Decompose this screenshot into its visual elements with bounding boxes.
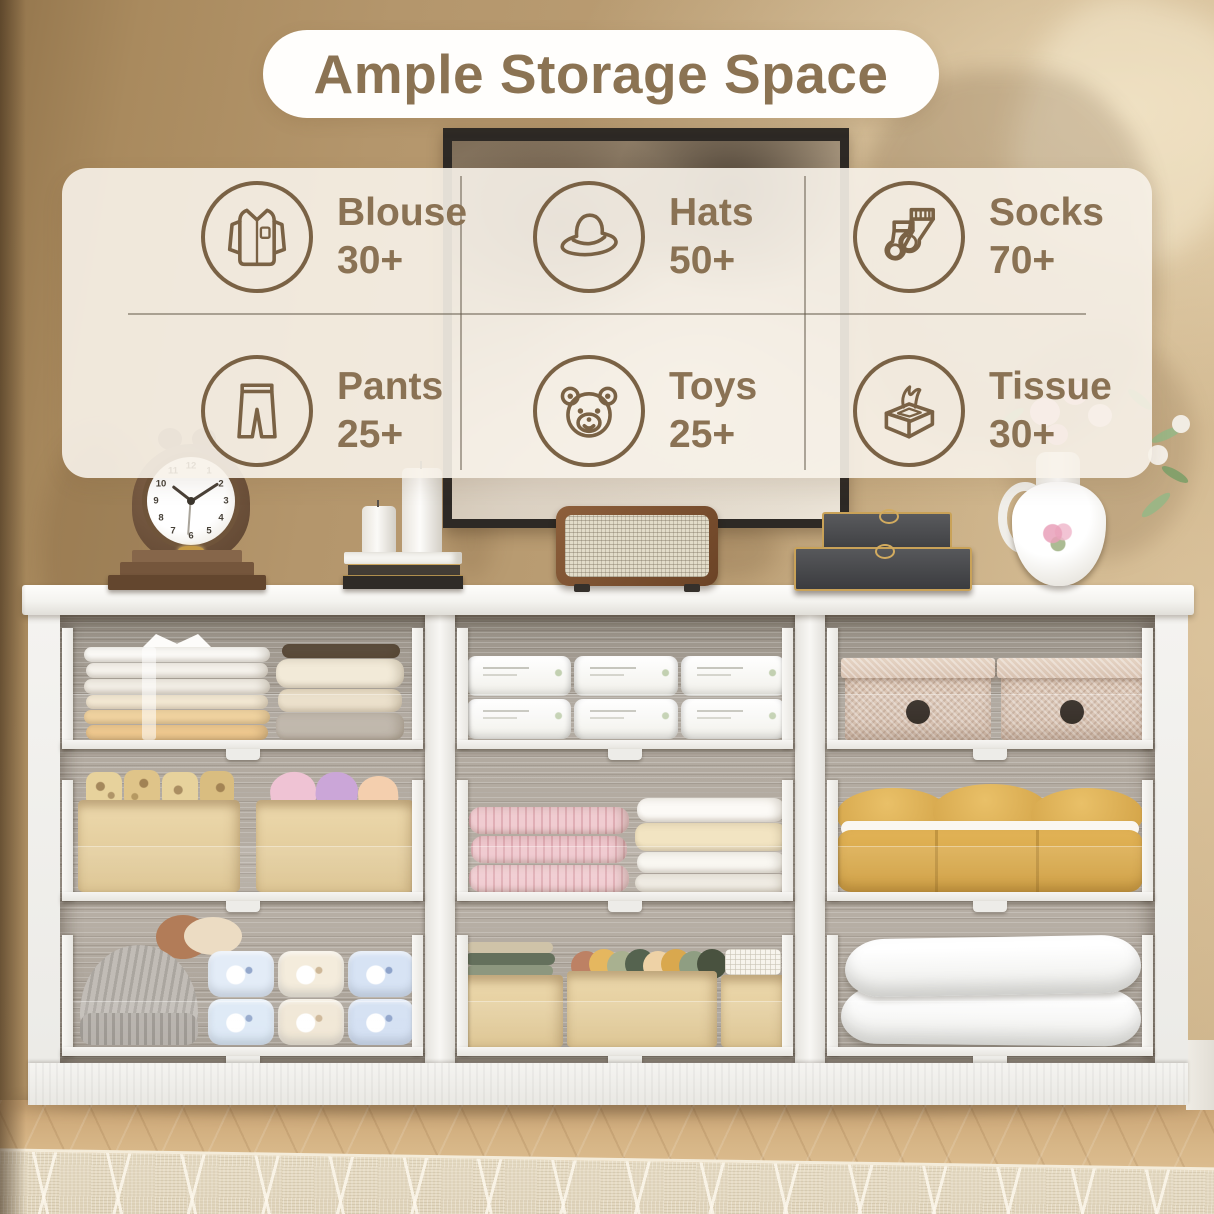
dresser-base [28, 1063, 1188, 1105]
shelf-bracket [827, 628, 838, 749]
storage-item-label: Toys [669, 363, 757, 411]
shelf-acrylic-front [73, 694, 412, 741]
dresser-divider [795, 615, 825, 1063]
storage-item-hats: Hats 50+ [533, 184, 754, 290]
pullout-shelf [827, 935, 1153, 1067]
shelf-acrylic-front [73, 1001, 412, 1048]
storage-item-label: Socks [989, 189, 1104, 237]
teddy-bear-icon [533, 355, 645, 467]
storage-dresser [28, 585, 1188, 1105]
storage-item-count: 30+ [337, 237, 467, 285]
storage-item-count: 25+ [669, 411, 757, 459]
storage-item-pants: Pants 25+ [201, 358, 443, 464]
shelf-bracket [782, 780, 793, 901]
pants-icon [201, 355, 313, 467]
clock-numeral: 4 [218, 513, 223, 524]
shelf-board [62, 892, 423, 901]
shelf-board [827, 740, 1153, 749]
storage-item-socks: Socks 70+ [853, 184, 1104, 290]
storage-item-text: Hats 50+ [669, 189, 754, 284]
shelf-bracket [412, 780, 423, 901]
clock-pin [187, 497, 195, 505]
tissue-icon [853, 355, 965, 467]
shelf-tab [608, 901, 642, 912]
shelf-bracket [1142, 780, 1153, 901]
pullout-shelf [457, 780, 793, 912]
clock-numeral: 5 [206, 526, 211, 537]
shelf-acrylic-front [73, 846, 412, 893]
pillar-candle [362, 506, 396, 554]
clock-numeral: 9 [153, 496, 158, 507]
storage-item-label: Tissue [989, 363, 1112, 411]
storage-item-tissue: Tissue 30+ [853, 358, 1112, 464]
dark-book [343, 575, 463, 589]
storage-item-count: 25+ [337, 411, 443, 459]
shelf-bracket [782, 628, 793, 749]
clock-base-step [120, 562, 254, 576]
shelf-tab [973, 749, 1007, 760]
speaker-foot [574, 584, 590, 592]
speaker-grille [565, 515, 709, 577]
shelf-board [457, 1047, 793, 1056]
shelf-bracket [62, 628, 73, 749]
shelf-bracket [1142, 628, 1153, 749]
hat-icon [533, 181, 645, 293]
shelf-board [827, 1047, 1153, 1056]
storage-item-count: 50+ [669, 237, 754, 285]
shelf-bracket [412, 935, 423, 1056]
clock-base-step [108, 575, 266, 590]
title-pill: Ample Storage Space [263, 30, 939, 118]
panel-divider-vertical [804, 176, 806, 470]
shelf-tab [226, 901, 260, 912]
shelf-board [62, 740, 423, 749]
shelf-tab [973, 901, 1007, 912]
pullout-shelf [457, 935, 793, 1067]
box-handle [879, 509, 899, 524]
shelf-acrylic-front [838, 694, 1142, 741]
shelf-bracket [62, 780, 73, 901]
shelf-board [457, 740, 793, 749]
product-scene: 12 1 2 3 4 5 6 7 8 9 10 11 [0, 0, 1214, 1214]
baseboard [1186, 1040, 1214, 1110]
shelf-acrylic-front [468, 846, 782, 893]
shelf-bracket [827, 935, 838, 1056]
clock-numeral: 7 [170, 526, 175, 537]
vase-floral-decal [1040, 520, 1076, 554]
shelf-tab [226, 749, 260, 760]
wall-corner-shadow [0, 0, 26, 1214]
shelf-bracket [62, 935, 73, 1056]
storage-item-text: Socks 70+ [989, 189, 1104, 284]
blouse-icon [201, 181, 313, 293]
wicker-speaker [556, 506, 718, 586]
storage-item-label: Pants [337, 363, 443, 411]
pullout-shelf [827, 780, 1153, 912]
clock-numeral: 10 [156, 479, 167, 490]
storage-info-panel: Blouse 30+ Hats 50+ [62, 168, 1152, 478]
keepsake-box-large [794, 547, 972, 591]
storage-item-text: Pants 25+ [337, 363, 443, 458]
storage-item-label: Blouse [337, 189, 467, 237]
clock-numeral: 8 [158, 513, 163, 524]
socks-icon [853, 181, 965, 293]
speaker-foot [684, 584, 700, 592]
pullout-shelf [827, 628, 1153, 760]
storage-item-toys: Toys 25+ [533, 358, 757, 464]
shelf-bracket [457, 780, 468, 901]
dresser-divider [425, 615, 455, 1063]
shelf-bracket [1142, 935, 1153, 1056]
storage-item-text: Blouse 30+ [337, 189, 467, 284]
pullout-shelf [62, 935, 423, 1067]
white-rose [1172, 415, 1190, 433]
storage-item-text: Toys 25+ [669, 363, 757, 458]
pullout-shelf [457, 628, 793, 760]
storage-item-count: 30+ [989, 411, 1112, 459]
pullout-shelf [62, 628, 423, 760]
shelf-acrylic-front [468, 694, 782, 741]
shelf-bracket [782, 935, 793, 1056]
white-book [344, 552, 462, 564]
shelf-tab [608, 749, 642, 760]
clock-numeral: 2 [218, 479, 223, 490]
shelf-bracket [412, 628, 423, 749]
shelf-bracket [457, 628, 468, 749]
shelf-board [457, 892, 793, 901]
clock-numeral: 3 [223, 496, 228, 507]
pullout-shelf [62, 780, 423, 912]
box-handle [875, 544, 895, 559]
candle-wick [377, 500, 379, 507]
shelf-bracket [827, 780, 838, 901]
pillar-candle [402, 468, 442, 554]
shelf-board [62, 1047, 423, 1056]
panel-divider-horizontal [128, 313, 1086, 315]
page-title: Ample Storage Space [314, 42, 889, 106]
storage-item-label: Hats [669, 189, 754, 237]
storage-item-blouse: Blouse 30+ [201, 184, 467, 290]
shelf-bracket [457, 935, 468, 1056]
shelf-acrylic-front [468, 1001, 782, 1048]
shelf-acrylic-front [838, 1001, 1142, 1048]
storage-item-count: 70+ [989, 237, 1104, 285]
shelf-board [827, 892, 1153, 901]
shelf-acrylic-front [838, 846, 1142, 893]
storage-item-text: Tissue 30+ [989, 363, 1112, 458]
